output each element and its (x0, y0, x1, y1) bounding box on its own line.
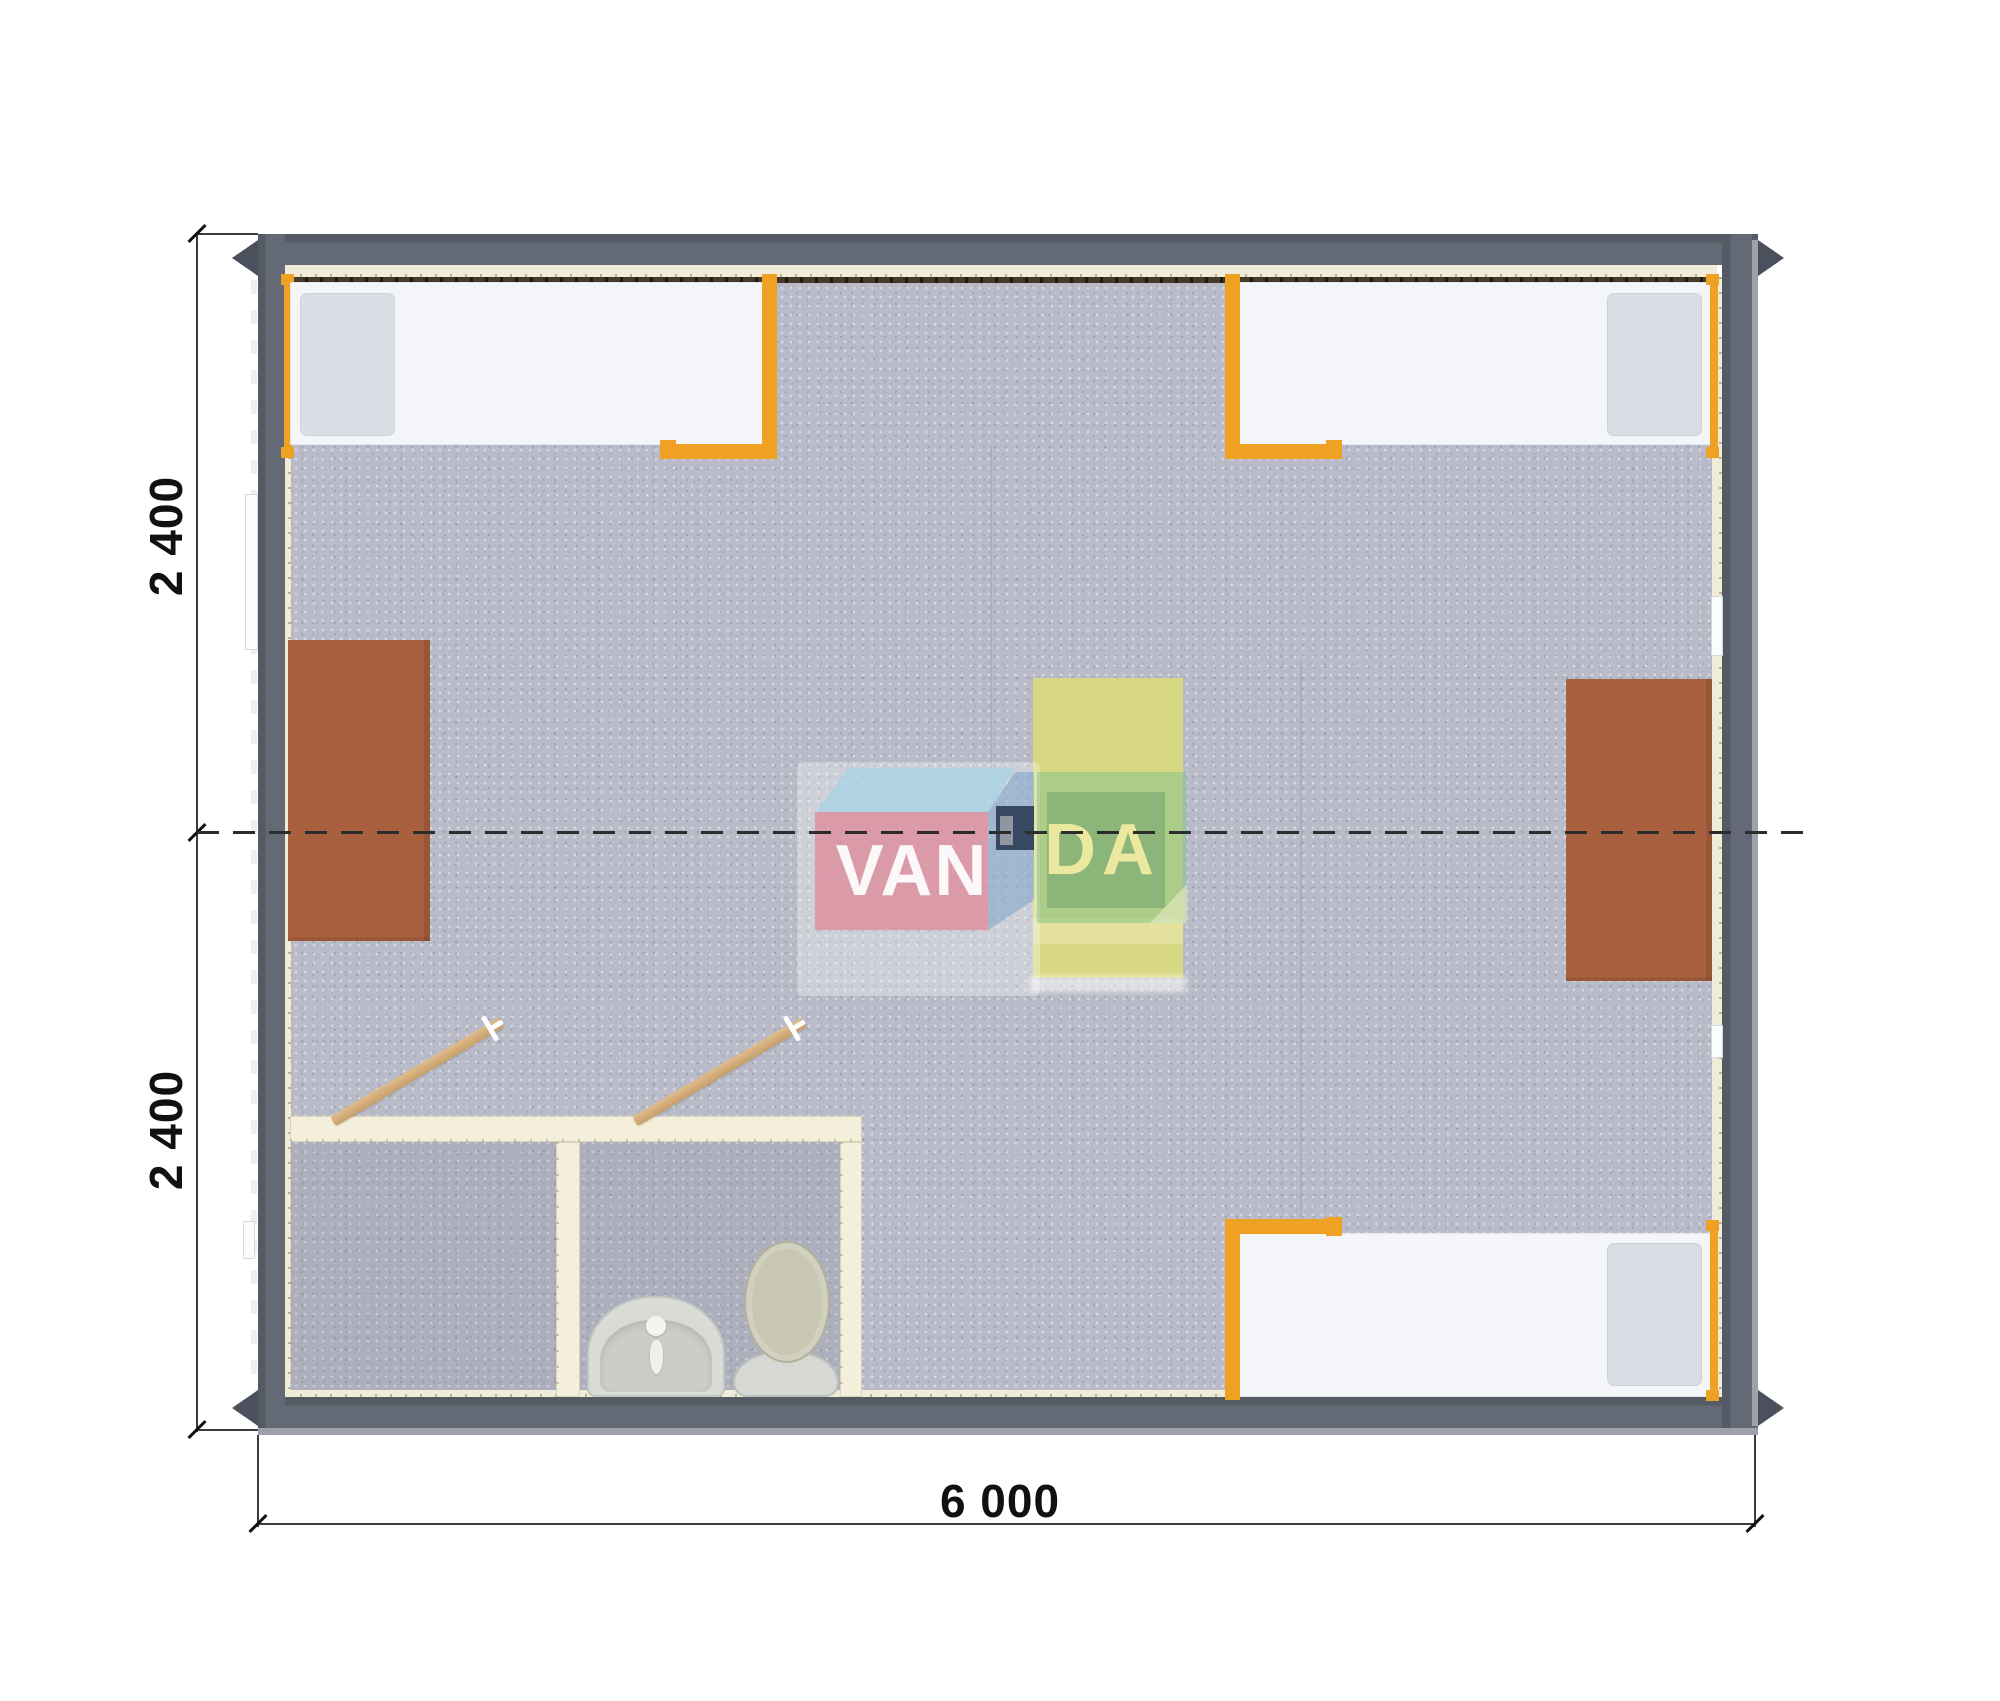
bathroom-floor-left (290, 1142, 556, 1390)
floor-plan-canvas: 2 400 2 400 6 000 (0, 0, 2000, 1701)
bed-pillow (1607, 293, 1702, 436)
wall-top (258, 234, 1758, 265)
bed-head-nub (1326, 1217, 1342, 1236)
window-left-wall (245, 494, 258, 650)
bed-frame-bar (762, 274, 777, 459)
logo-text-van: VAN (812, 812, 1012, 930)
centerline-axis (197, 831, 1807, 834)
bed-foot-nub (660, 440, 676, 459)
bed-rail-nub (281, 447, 294, 458)
window-right-wall-upper (1711, 596, 1723, 656)
bed-foot-bar (1225, 444, 1338, 459)
corner-casting-bottom-right (1758, 1390, 1784, 1426)
bed-rail-nub (1706, 274, 1719, 285)
wall-bottom (258, 1397, 1758, 1428)
bed-foot-bar (664, 444, 777, 459)
desk-right (1566, 679, 1712, 981)
faucet-spout-icon (650, 1340, 663, 1374)
corner-casting-bottom-left (232, 1390, 258, 1426)
dim-stub-bottom (196, 1429, 258, 1431)
bed-frame-bar (1225, 274, 1240, 459)
bathroom-wall-top (290, 1116, 862, 1142)
wall-liner-top (285, 265, 1717, 277)
corner-casting-top-left (232, 240, 258, 276)
corner-casting-top-right (1758, 240, 1784, 276)
desk-left (288, 640, 430, 941)
window-left-wall-bathroom (243, 1221, 255, 1259)
bed-rail-nub (1706, 1220, 1719, 1231)
bed-rail (1710, 1222, 1718, 1400)
wall-bottom-lip (258, 1428, 1758, 1435)
bed-pillow (1607, 1243, 1702, 1386)
bathroom-wall-partition (556, 1142, 580, 1397)
bed-pillow (300, 293, 395, 436)
dim-ext-left (257, 1435, 259, 1527)
bed-frame-bar (1225, 1219, 1240, 1400)
logo-text-da: DA (1037, 792, 1167, 908)
bed-rail-nub (1706, 447, 1719, 458)
bed-head-bar (1225, 1219, 1338, 1234)
dim-stub-top (196, 233, 258, 235)
bed-foot-nub (1326, 440, 1342, 459)
dim-ext-right (1754, 1435, 1756, 1527)
table-shadow (1030, 976, 1186, 992)
dim-label-bottom: 6 000 (900, 1474, 1100, 1528)
faucet-icon (646, 1316, 666, 1336)
bed-rail-nub (1706, 1390, 1719, 1401)
dim-label-left-upper: 2 400 (144, 466, 188, 606)
floor-seam (990, 446, 992, 776)
window-right-wall-lower (1711, 1025, 1723, 1058)
bathroom-wall-right (840, 1142, 862, 1397)
floor-seam (1300, 660, 1302, 1280)
bed-rail (1710, 276, 1718, 456)
toilet-lid (744, 1241, 830, 1363)
dim-label-left-lower: 2 400 (144, 1060, 188, 1200)
